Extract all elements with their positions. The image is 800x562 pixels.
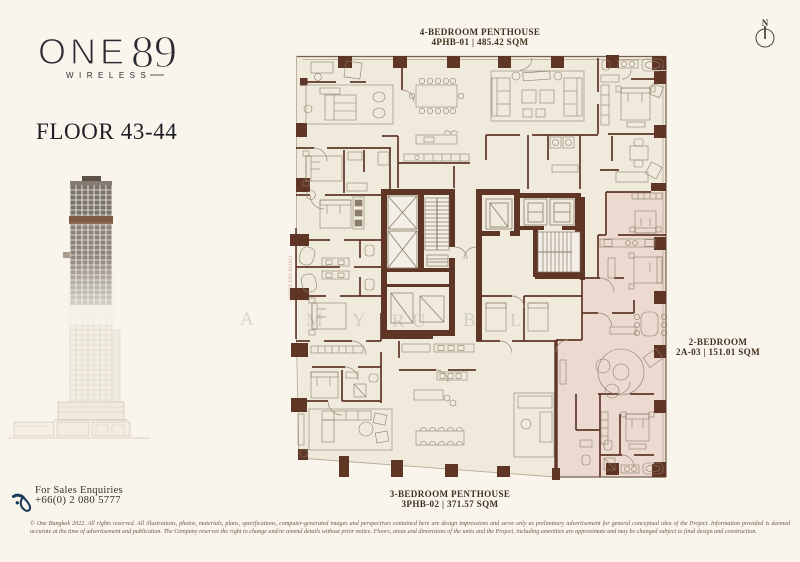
svg-text:N: N (762, 18, 769, 28)
svg-text:Y: Y (352, 310, 366, 331)
svg-text:B: B (463, 310, 476, 331)
svg-text:L: L (510, 310, 522, 331)
svg-text:R: R (392, 311, 405, 332)
svg-text:U: U (412, 311, 426, 332)
svg-text:A: A (240, 309, 254, 330)
svg-text:M: M (306, 310, 323, 331)
